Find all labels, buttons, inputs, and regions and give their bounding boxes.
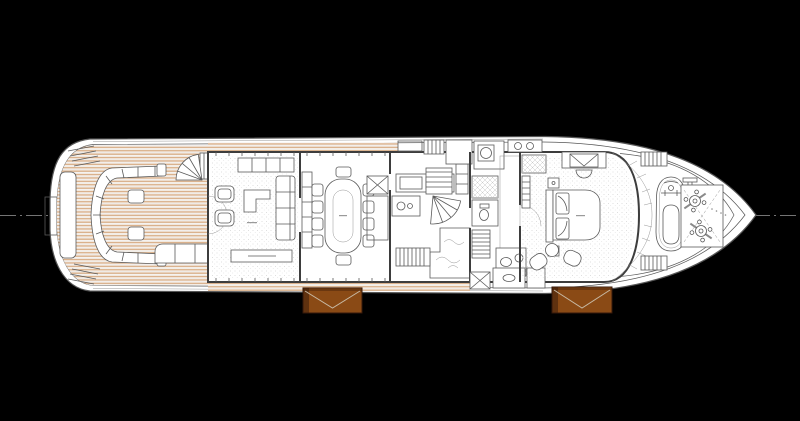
fold-down-balcony-forward	[552, 287, 612, 313]
deck-plan-drawing	[0, 0, 800, 421]
side-table	[128, 227, 144, 240]
staircase-down	[396, 248, 430, 266]
wardrobe	[472, 176, 498, 198]
anchor-windlass-area	[680, 185, 727, 247]
double-bed	[546, 190, 600, 242]
deck-locker	[470, 272, 490, 289]
transom-seat-back	[60, 172, 76, 258]
armchair	[215, 210, 234, 226]
ladder-hatch	[424, 140, 444, 154]
staircase-down	[472, 230, 490, 258]
wc	[472, 200, 498, 226]
dining-table	[325, 179, 361, 253]
round-table	[546, 244, 559, 257]
armchair	[215, 186, 234, 202]
owners-cabin	[520, 152, 635, 282]
sideboard	[231, 250, 292, 262]
side-deck-teak-top	[208, 143, 398, 153]
galley-sink-counter	[392, 196, 420, 216]
dumbwaiter	[367, 176, 388, 194]
day-head	[474, 141, 504, 169]
sink-counter	[508, 140, 542, 152]
salon-cabinet	[238, 158, 294, 172]
main-salon	[208, 152, 298, 282]
fold-down-balcony-aft	[303, 288, 362, 313]
locker	[446, 140, 472, 164]
salon-sofa	[276, 176, 295, 240]
room-label-mark	[247, 222, 257, 223]
deck-plan-canvas	[0, 0, 800, 421]
side-table	[128, 190, 144, 203]
dining-cabinet	[302, 172, 312, 248]
